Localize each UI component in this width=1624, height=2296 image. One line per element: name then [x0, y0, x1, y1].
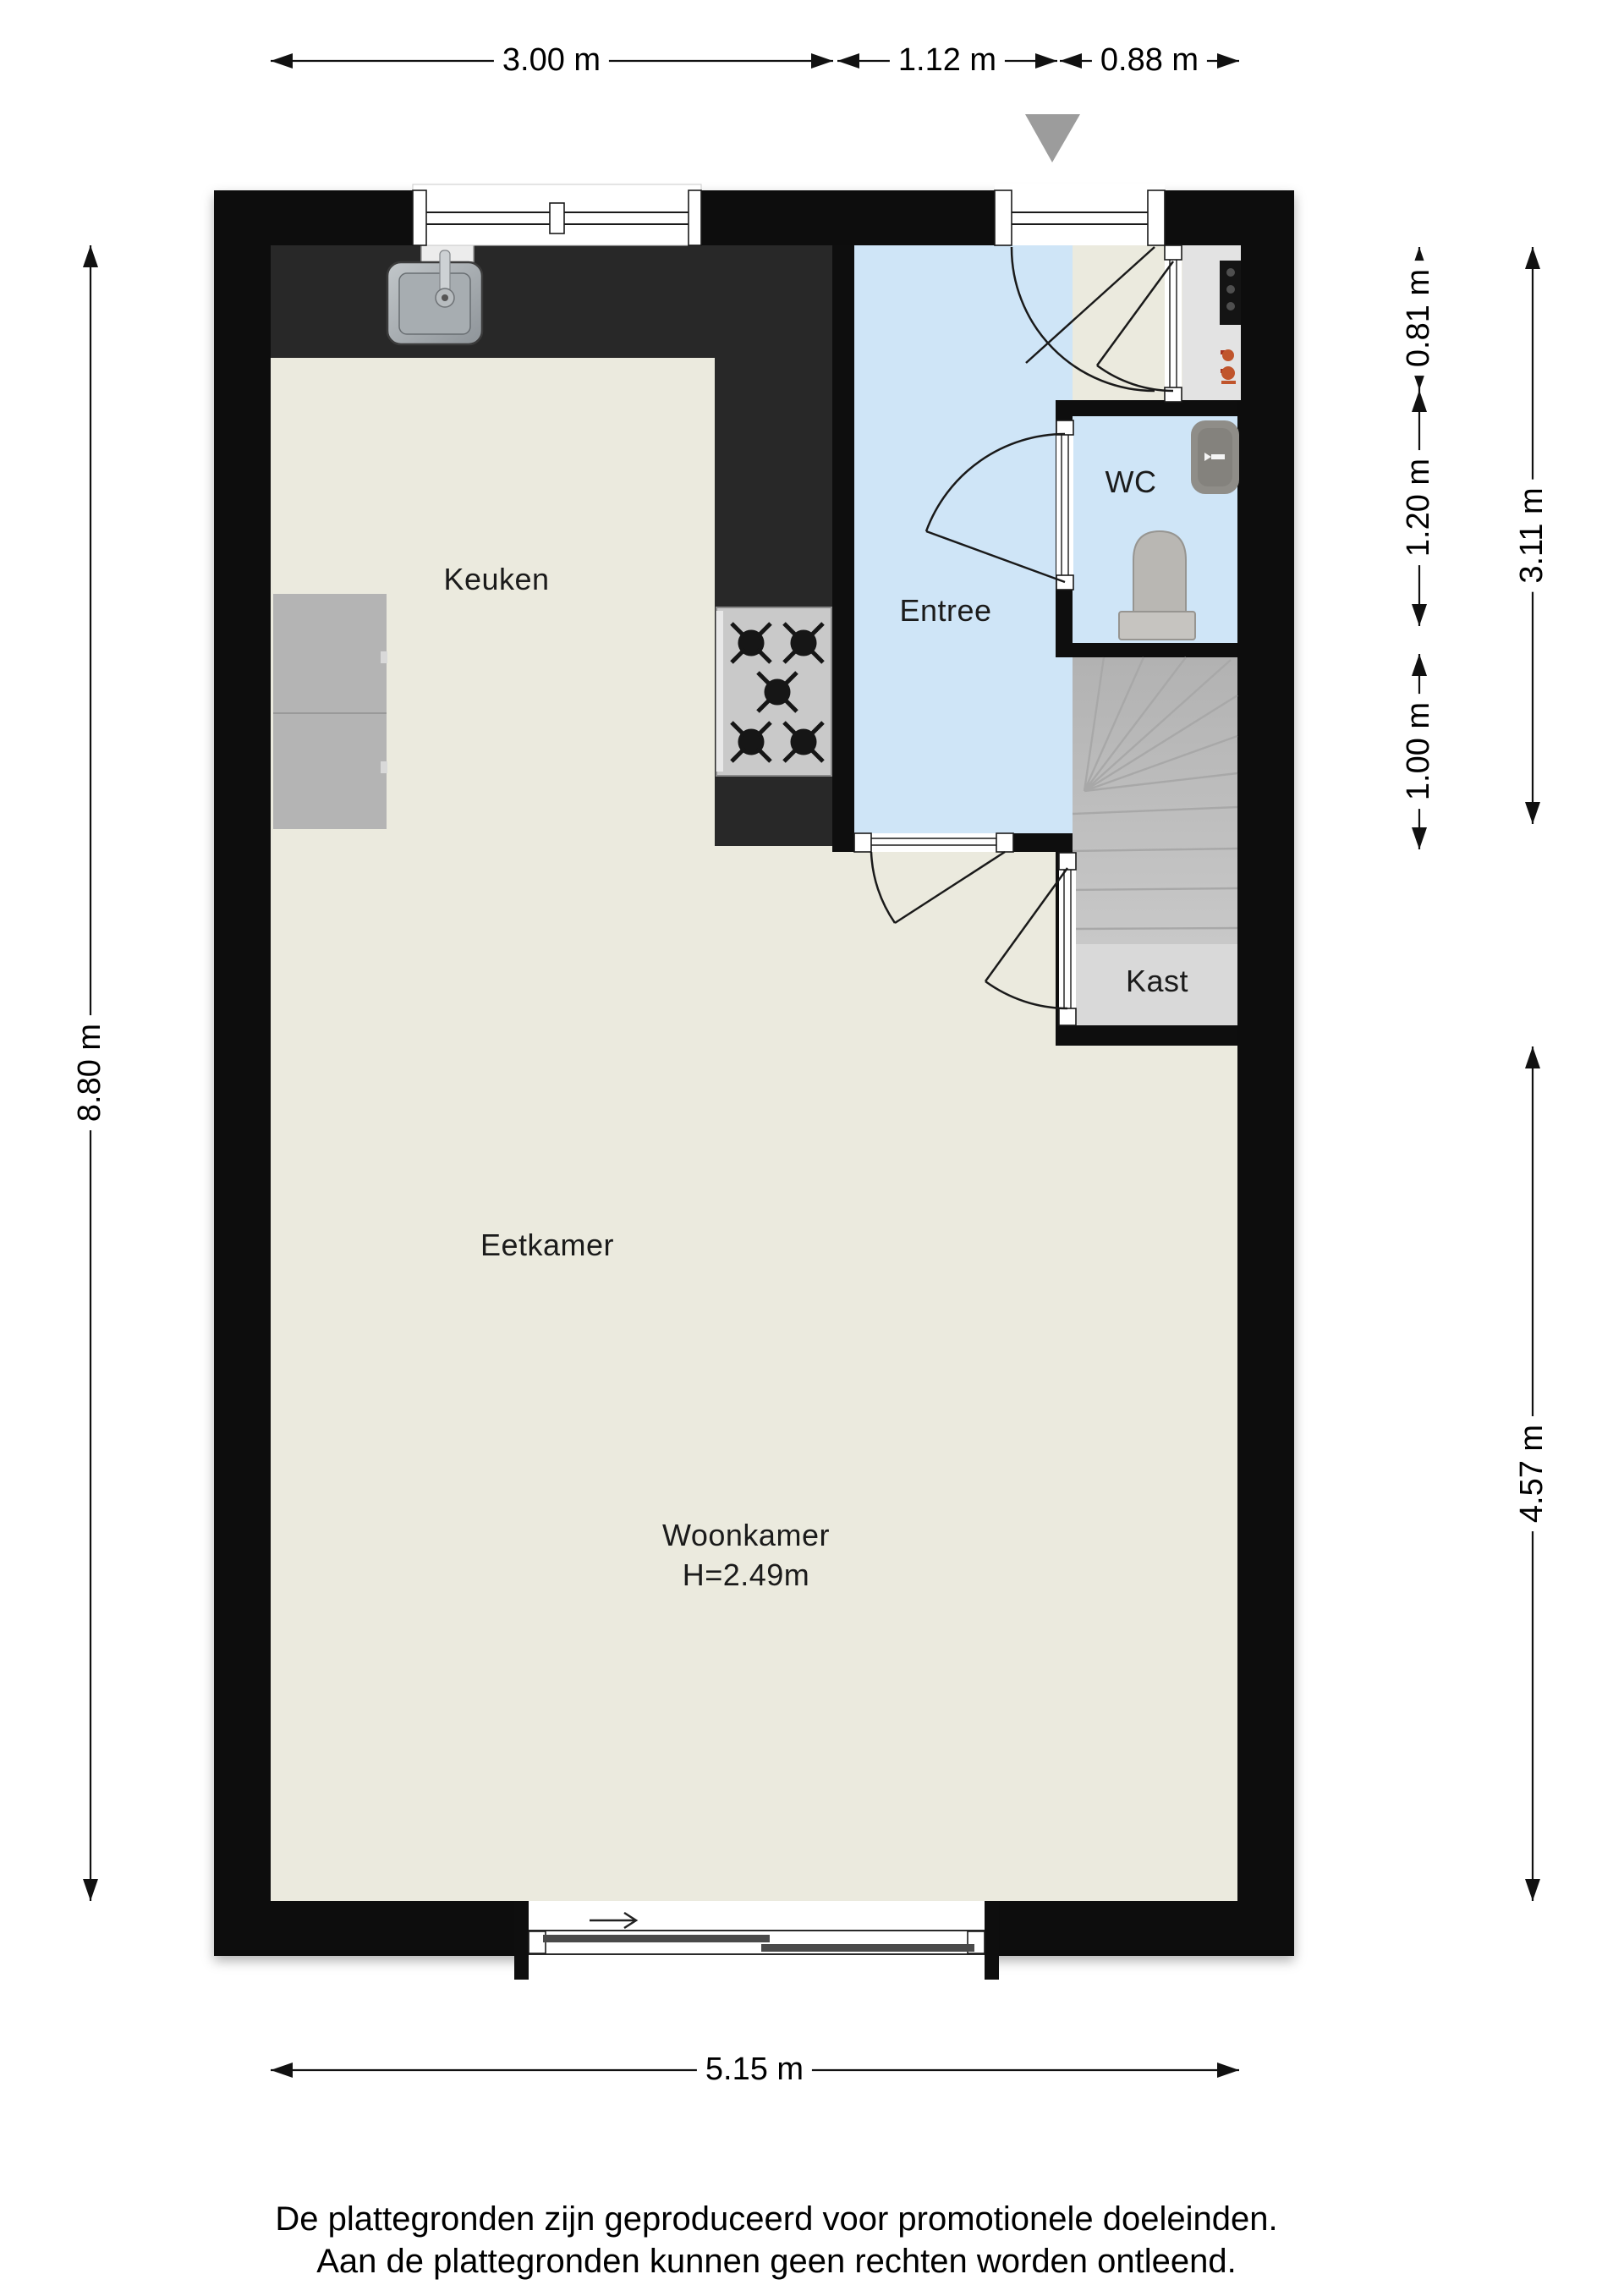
- disclaimer-line-1: De plattegronden zijn geproduceerd voor …: [0, 2198, 1553, 2240]
- stove: [716, 607, 831, 776]
- dim-right-inner-1-label: 0.81 m: [1402, 261, 1437, 376]
- disclaimer: De plattegronden zijn geproduceerd voor …: [0, 2198, 1553, 2282]
- fridge-cabinet: [273, 594, 387, 829]
- kitchen-window: [413, 184, 701, 245]
- room-label-kast: Kast: [1126, 964, 1188, 999]
- dim-left-label: 8.80 m: [73, 1015, 108, 1130]
- floorplan-drawing: [0, 0, 1624, 2296]
- floorplan-canvas: 3.00 m 1.12 m 0.88 m 8.80 m 0.81 m 1.20 …: [0, 0, 1624, 2296]
- room-label-woonkamer: Woonkamer: [662, 1518, 830, 1553]
- dim-right-inner-2-label: 1.20 m: [1402, 450, 1437, 565]
- room-label-wc: WC: [1106, 464, 1157, 500]
- room-height-note: H=2.49m: [683, 1557, 810, 1593]
- room-label-eetkamer: Eetkamer: [480, 1228, 614, 1263]
- dim-right-outer-2-label: 4.57 m: [1515, 1416, 1550, 1531]
- wc-basin: [1191, 420, 1239, 494]
- entrance-indicator-icon: [1025, 114, 1080, 162]
- dim-top-1-label: 3.00 m: [494, 43, 609, 79]
- disclaimer-line-2: Aan de plattegronden kunnen geen rechten…: [0, 2240, 1553, 2282]
- sliding-panel-left: [543, 1935, 770, 1942]
- dim-right-outer-1-label: 3.11 m: [1515, 479, 1550, 591]
- staircase: [1073, 657, 1237, 944]
- room-label-keuken: Keuken: [443, 562, 549, 597]
- wc-room: [1073, 416, 1239, 643]
- dim-bottom-label: 5.15 m: [697, 2052, 812, 2088]
- boiler-closet: [1182, 245, 1241, 400]
- dim-top-2-label: 1.12 m: [890, 43, 1005, 79]
- room-label-entree: Entree: [899, 593, 991, 629]
- sliding-door: [514, 1901, 999, 1980]
- dim-top-3-label: 0.88 m: [1092, 43, 1207, 79]
- sliding-panel-right: [761, 1944, 974, 1952]
- floor-entree: [854, 245, 1073, 852]
- dim-right-inner-3-label: 1.00 m: [1402, 694, 1437, 809]
